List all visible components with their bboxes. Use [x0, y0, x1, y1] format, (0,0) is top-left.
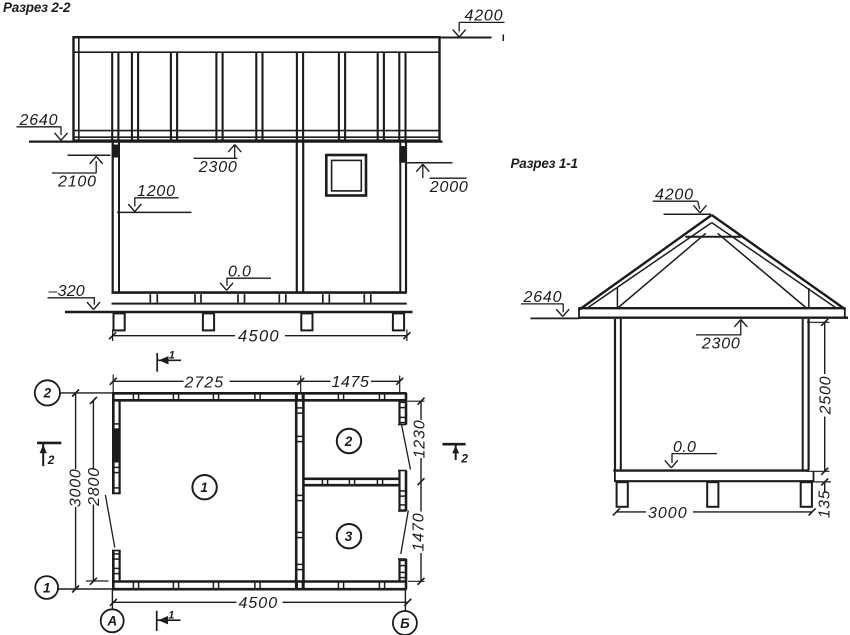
svg-text:2: 2 — [47, 453, 55, 467]
svg-text:3000: 3000 — [68, 468, 85, 507]
svg-text:2500: 2500 — [817, 376, 834, 416]
svg-text:Разрез 1-1: Разрез 1-1 — [511, 156, 578, 171]
svg-text:3: 3 — [345, 529, 353, 544]
svg-text:4500: 4500 — [239, 595, 279, 612]
svg-text:Разрез 2-2: Разрез 2-2 — [3, 0, 71, 15]
svg-text:Б: Б — [400, 616, 410, 631]
svg-text:2000: 2000 — [429, 179, 469, 196]
svg-text:4500: 4500 — [238, 327, 280, 345]
svg-text:2300: 2300 — [701, 335, 741, 352]
svg-text:1: 1 — [169, 349, 176, 361]
svg-text:2: 2 — [43, 386, 52, 401]
svg-text:2100: 2100 — [57, 174, 97, 191]
svg-text:1: 1 — [43, 580, 51, 595]
svg-text:А: А — [106, 614, 117, 629]
svg-text:3000: 3000 — [648, 505, 688, 522]
svg-text:135: 135 — [817, 490, 834, 518]
svg-text:2: 2 — [460, 452, 468, 466]
svg-text:1470: 1470 — [411, 513, 428, 552]
svg-text:1: 1 — [200, 480, 208, 495]
svg-text:2300: 2300 — [198, 159, 238, 176]
svg-text:2800: 2800 — [86, 467, 103, 507]
svg-text:1: 1 — [168, 609, 175, 621]
svg-text:2: 2 — [344, 434, 353, 449]
svg-text:2725: 2725 — [184, 374, 225, 391]
svg-text:1230: 1230 — [412, 420, 429, 459]
svg-text:1475: 1475 — [332, 374, 370, 391]
